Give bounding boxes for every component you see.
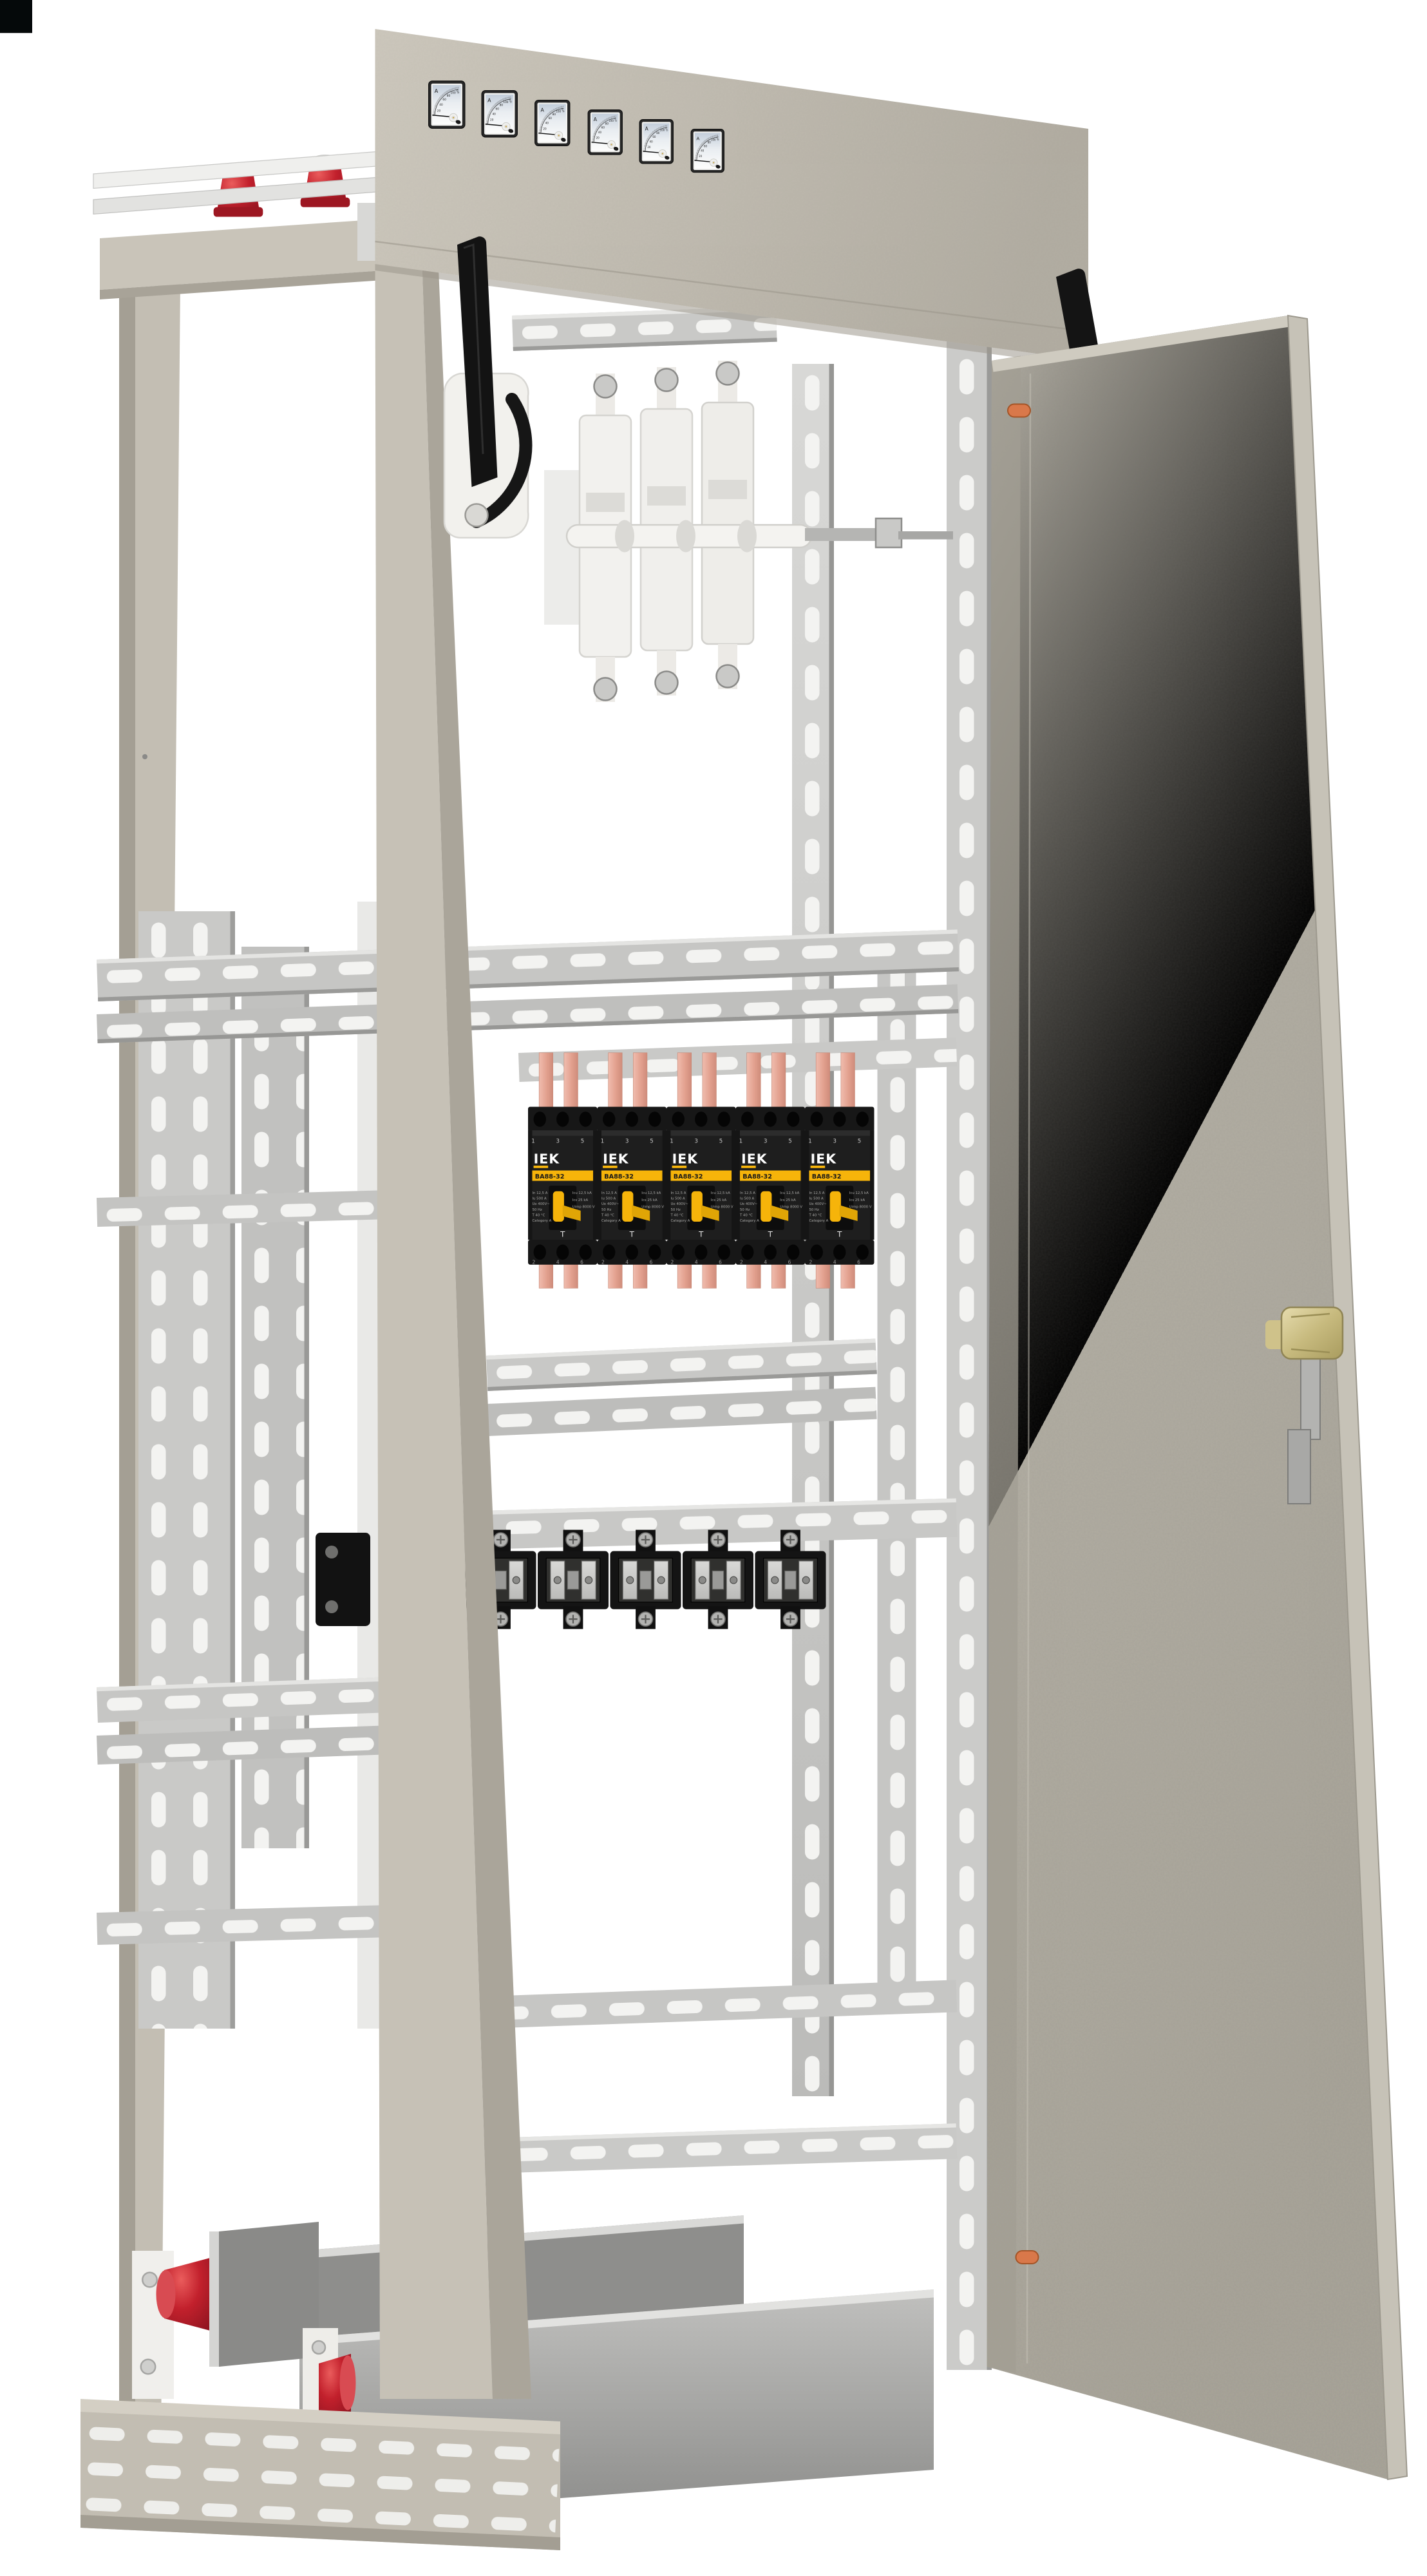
shaft-washer xyxy=(676,520,695,553)
lock-latch-bar-lower xyxy=(1288,1430,1310,1504)
drive-link xyxy=(805,528,879,541)
slab-edge-highlight xyxy=(209,2231,221,2367)
ammeter xyxy=(639,120,673,164)
perforated-upright-right xyxy=(947,290,992,2370)
red-insulator-cap xyxy=(340,2356,356,2410)
shaft-washer xyxy=(737,520,757,553)
drive-rod xyxy=(898,531,953,540)
door-hinge-pin-top xyxy=(1008,404,1030,417)
corner-artifact xyxy=(0,0,32,33)
red-insulator-cap xyxy=(156,2270,176,2318)
end-box-bolt xyxy=(325,1546,338,1558)
perforated-plate xyxy=(138,911,235,2029)
lever-hex-bolt xyxy=(466,504,488,527)
ammeter xyxy=(535,100,570,146)
door-hinge-pin-bottom xyxy=(1016,2251,1039,2264)
ammeter xyxy=(588,110,622,155)
cabinet-render: A 20 40 60 80 100 200 1 xyxy=(0,0,1427,2576)
ammeter xyxy=(691,129,724,173)
door-hinge-flange xyxy=(987,356,1021,2374)
drive-clevis xyxy=(876,518,902,547)
shaft-washer xyxy=(615,520,634,553)
wall-bolt xyxy=(142,754,147,759)
perforated-upright xyxy=(878,950,916,2000)
bracket-hole xyxy=(312,2341,325,2354)
end-box-bolt xyxy=(325,1600,338,1613)
fuse-row-end-box xyxy=(316,1533,370,1626)
ammeter xyxy=(429,81,465,129)
lock-latch-bar xyxy=(1301,1356,1320,1439)
bracket-hole xyxy=(141,2360,156,2374)
base-channel xyxy=(75,2412,560,2550)
ammeter xyxy=(482,91,517,137)
bracket-hole xyxy=(142,2273,157,2287)
left-wall-edge xyxy=(119,289,135,2416)
